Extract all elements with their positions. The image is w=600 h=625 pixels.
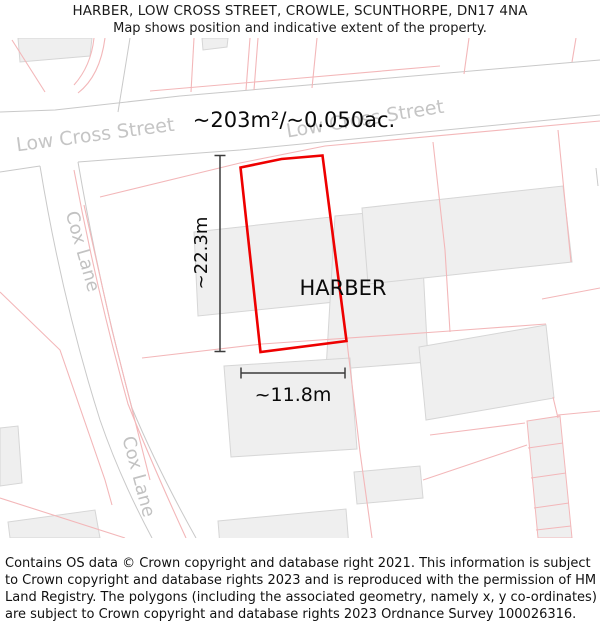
page-subtitle: Map shows position and indicative extent… bbox=[0, 19, 600, 36]
page-title: HARBER, LOW CROSS STREET, CROWLE, SCUNTH… bbox=[0, 0, 600, 19]
property-map-page: HARBER, LOW CROSS STREET, CROWLE, SCUNTH… bbox=[0, 0, 600, 625]
attribution-footer: Contains OS data © Crown copyright and d… bbox=[0, 555, 600, 625]
header: HARBER, LOW CROSS STREET, CROWLE, SCUNTH… bbox=[0, 0, 600, 38]
map-canvas: Low Cross Street Low Cross Street Cox La… bbox=[0, 0, 600, 625]
area-label: ~203m²/~0.050ac. bbox=[193, 108, 395, 132]
dimension-label-width: ~11.8m bbox=[255, 384, 332, 406]
building-west-edge bbox=[0, 426, 22, 486]
building-harber bbox=[194, 217, 335, 316]
property-name-label: HARBER bbox=[299, 276, 386, 300]
dimension-label-height: ~22.3m bbox=[191, 217, 212, 290]
